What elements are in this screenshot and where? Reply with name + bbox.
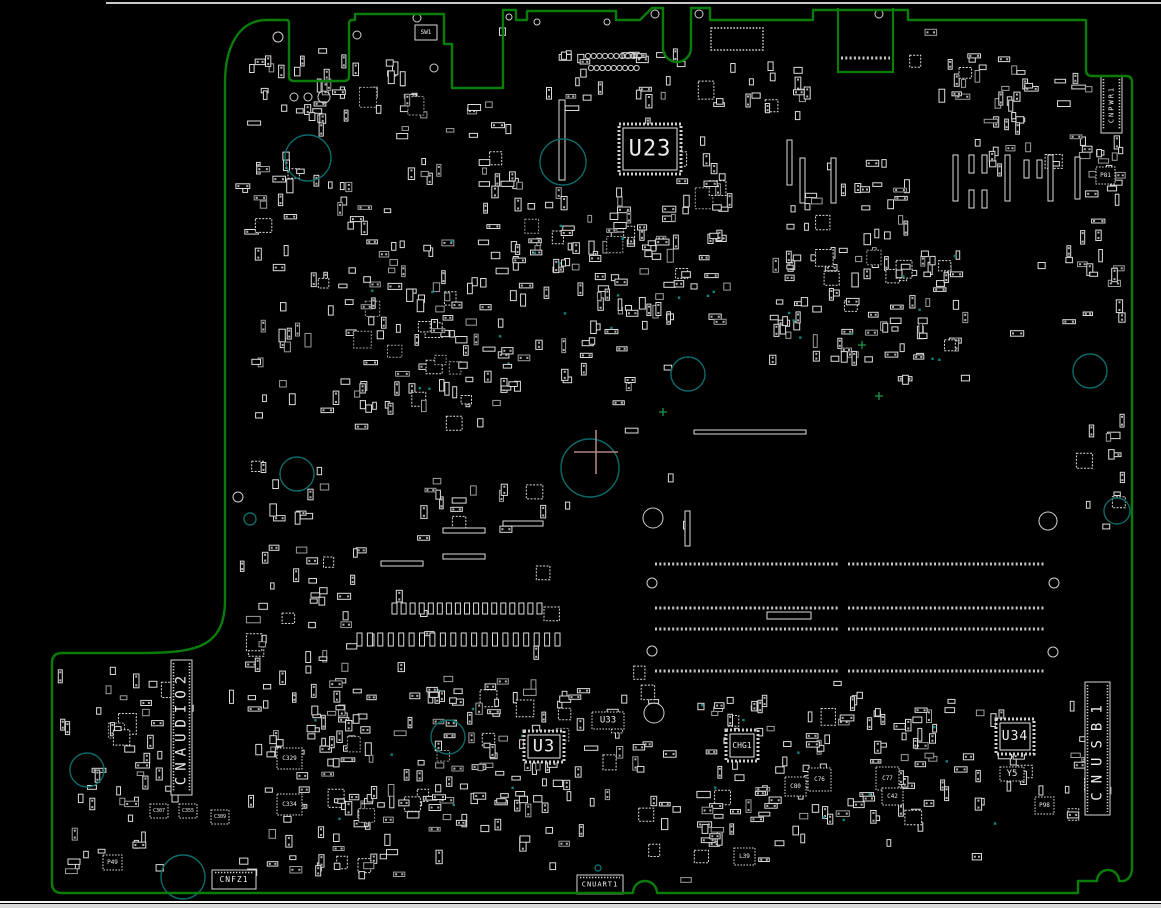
pad-mark [360, 218, 362, 220]
smd-component [269, 545, 279, 550]
pad-mark [320, 828, 322, 830]
smd-component [452, 516, 465, 528]
pad-mark [766, 805, 768, 807]
via-dot [792, 319, 794, 321]
pad-row-pad [474, 603, 479, 614]
pad-mark [433, 330, 435, 332]
smd-component [841, 352, 847, 363]
pad-mark [355, 796, 357, 798]
pad-mark [1006, 126, 1008, 128]
pad-mark [1074, 80, 1076, 82]
pad-mark [591, 257, 593, 259]
via-dot [511, 787, 513, 789]
pad-mark [1121, 319, 1123, 321]
pad-mark [602, 276, 604, 278]
pad-mark [566, 786, 568, 788]
smd-component [568, 243, 572, 250]
pad-mark [304, 775, 306, 777]
smd-component [526, 485, 543, 499]
pad-mark [362, 390, 364, 392]
via-dot [621, 238, 623, 240]
pad-mark [838, 813, 840, 815]
pad-mark [869, 726, 871, 728]
smd-component [349, 794, 358, 799]
pad-mark [274, 178, 276, 180]
pad-mark [298, 869, 300, 871]
pad-mark [267, 63, 269, 65]
smd-component [1007, 782, 1011, 791]
pad-mark [282, 681, 284, 683]
component-label: P49 [107, 859, 118, 866]
pad-mark [684, 180, 686, 182]
component-label: U3 [533, 737, 555, 757]
smd-component [343, 612, 348, 620]
pad-mark [475, 795, 477, 797]
smd-component [590, 798, 594, 806]
pad-mark [374, 362, 376, 364]
pad-mark [336, 699, 338, 701]
component-label: C329 [282, 755, 297, 762]
pad-mark [442, 796, 444, 798]
pad-mark [759, 709, 761, 711]
pad-mark [753, 703, 755, 705]
smd-component [639, 808, 654, 821]
pad-mark [448, 778, 450, 780]
pad-mark [580, 833, 582, 835]
pad-mark [699, 823, 701, 825]
smd-component [351, 575, 355, 584]
smd-component [256, 413, 263, 418]
smd-component [308, 734, 315, 739]
smd-component [120, 798, 125, 805]
pad-mark [409, 719, 411, 721]
smd-component [493, 400, 501, 405]
via-dot [931, 358, 933, 360]
pad-row-pad [483, 603, 488, 614]
pad-mark [619, 209, 621, 211]
pad-mark [904, 784, 906, 786]
pad-mark [563, 232, 565, 234]
smd-component [715, 703, 724, 709]
pad-mark [91, 800, 93, 802]
pad-mark [492, 686, 494, 688]
pad-mark [1121, 267, 1123, 269]
pad-mark [866, 270, 868, 272]
pad-mark [342, 91, 344, 93]
pad-mark [1116, 137, 1118, 139]
pad-mark [616, 281, 618, 283]
pad-mark [158, 770, 160, 772]
pad-mark [494, 188, 496, 190]
smd-component [639, 298, 645, 310]
smd-component [453, 387, 457, 398]
pad-mark [368, 241, 370, 243]
smd-component [984, 119, 998, 123]
pad-mark [849, 354, 851, 356]
pad-mark [900, 378, 902, 380]
smd-component [436, 785, 441, 792]
via-dot [431, 291, 433, 293]
pad-mark [308, 560, 310, 562]
pad-mark [383, 325, 385, 327]
pad-mark [503, 380, 505, 382]
pad-mark [928, 711, 930, 713]
pad-mark [718, 316, 720, 318]
smd-component [1072, 85, 1086, 89]
pad-mark [675, 245, 677, 247]
pad-mark [543, 718, 545, 720]
via-dot [946, 760, 948, 762]
pad-mark [1000, 93, 1002, 95]
pad-mark [597, 276, 599, 278]
pad-mark [351, 796, 353, 798]
smd-component [1065, 786, 1069, 793]
pad-mark [410, 169, 412, 171]
smd-component [328, 306, 333, 315]
thin-component [1024, 160, 1029, 178]
smd-component [786, 332, 791, 338]
pad-mark [503, 350, 505, 352]
pad-mark [406, 373, 408, 375]
pad-mark [453, 768, 455, 770]
pad-mark [313, 283, 315, 285]
pad-mark [1016, 94, 1018, 96]
pad-mark [839, 345, 841, 347]
via-dot [822, 816, 824, 818]
smd-component [320, 484, 328, 490]
pad-mark [852, 698, 854, 700]
smd-component [672, 214, 676, 221]
pad-mark [441, 330, 443, 332]
pad-mark [323, 409, 325, 411]
pad-mark [933, 31, 935, 33]
pad-mark [438, 852, 440, 854]
pad-mark [595, 253, 597, 255]
smd-component [918, 728, 922, 741]
pad-mark [322, 116, 324, 118]
smd-component [361, 727, 370, 733]
smd-component [84, 851, 89, 858]
pad-mark [586, 690, 588, 692]
pad-mark [634, 758, 636, 760]
pad-mark [429, 181, 431, 183]
smd-component [561, 52, 566, 59]
pad-mark [438, 173, 440, 175]
pad-mark [806, 88, 808, 90]
via-dot [617, 294, 619, 296]
smd-component [296, 109, 303, 113]
smd-component [1099, 250, 1103, 262]
smd-component [259, 603, 268, 609]
pad-mark [974, 856, 976, 858]
pad-mark [667, 803, 669, 805]
smd-component [271, 583, 275, 589]
pad-mark [911, 785, 913, 787]
pad-mark [348, 624, 350, 626]
pad-mark [1090, 433, 1092, 435]
pad-mark [664, 208, 666, 210]
smd-component [491, 252, 500, 258]
via-dot [714, 786, 716, 788]
pad-mark [1118, 309, 1120, 311]
pad-mark [522, 259, 524, 261]
component-label: C42 [887, 793, 898, 800]
pad-mark [426, 537, 428, 539]
pad-mark [715, 275, 717, 277]
via-dot [797, 751, 799, 753]
pad-mark [624, 348, 626, 350]
smd-component [864, 269, 870, 279]
pad-mark [432, 489, 434, 491]
pad-row-pad [357, 633, 362, 646]
smd-component [1012, 66, 1017, 74]
via-dot [419, 387, 421, 389]
pad-mark [712, 839, 714, 841]
smd-component [697, 791, 710, 797]
pad-mark [351, 759, 353, 761]
component-label: C80 [790, 783, 801, 790]
smd-component [691, 284, 697, 289]
smd-component [149, 681, 157, 687]
pad-mark [977, 800, 979, 802]
pad-mark [264, 560, 266, 562]
smd-component [328, 711, 336, 715]
pad-mark [469, 721, 471, 723]
smd-component [364, 863, 374, 869]
pad-mark [352, 581, 354, 583]
smd-component [319, 49, 327, 54]
pad-mark [600, 307, 602, 309]
smd-component [901, 755, 908, 761]
pad-mark [711, 316, 713, 318]
via-dot [559, 262, 561, 264]
pad-mark [661, 803, 663, 805]
pad-mark [345, 748, 347, 750]
thin-component [443, 528, 485, 533]
pad-mark [563, 206, 565, 208]
pad-mark [648, 306, 650, 308]
component-CNPWR1: CNPWR1 [1101, 76, 1122, 133]
pad-mark [1007, 147, 1009, 149]
smd-component [821, 709, 835, 726]
pad-mark [250, 708, 252, 710]
pad-mark [787, 277, 789, 279]
pad-mark [474, 766, 476, 768]
pad-mark [334, 91, 336, 93]
smd-component [831, 356, 839, 361]
pad-mark [606, 331, 608, 333]
pad-mark [496, 183, 498, 185]
pad-mark [575, 244, 577, 246]
smd-component [913, 738, 917, 748]
pad-mark [657, 241, 659, 243]
smd-component [388, 785, 394, 797]
smd-component [360, 384, 365, 393]
pad-mark [930, 802, 932, 804]
smd-component [322, 738, 326, 746]
pad-mark [526, 357, 528, 359]
pad-mark [280, 74, 282, 76]
smd-component [347, 644, 357, 649]
smd-component [791, 206, 795, 212]
smd-component [1076, 453, 1092, 468]
smd-component [589, 338, 594, 344]
smd-component [900, 344, 904, 352]
smd-component [901, 264, 910, 269]
pad-mark [420, 366, 422, 368]
component-Y5: Y5 [1000, 767, 1024, 781]
pad-mark [280, 67, 282, 69]
smd-component [715, 790, 731, 805]
smd-component [961, 375, 969, 381]
smd-component [354, 549, 358, 557]
pad-mark [1121, 314, 1123, 316]
smd-component [956, 251, 960, 259]
pad-mark [999, 172, 1001, 174]
smd-component [117, 787, 121, 795]
smd-component [347, 737, 360, 752]
pad-mark [766, 788, 768, 790]
smd-component [591, 321, 597, 334]
pad-mark [569, 232, 571, 234]
smd-component [1083, 312, 1092, 316]
pad-mark [560, 269, 562, 271]
pad-row-pad [519, 603, 524, 614]
smd-component [422, 159, 426, 165]
pad-mark [762, 792, 764, 794]
smd-component [260, 201, 266, 208]
pad-mark [339, 595, 341, 597]
smd-component [865, 357, 873, 362]
pad-mark [426, 489, 428, 491]
pad-mark [309, 491, 311, 493]
smd-component [390, 260, 398, 266]
pad-mark [872, 812, 874, 814]
pad-mark [866, 275, 868, 277]
pad-row-pad [437, 603, 442, 614]
pad-mark [489, 711, 491, 713]
smd-component [306, 666, 311, 673]
smd-component [890, 318, 901, 323]
pad-mark [262, 464, 264, 466]
pad-mark [246, 185, 248, 187]
smd-component [580, 60, 590, 64]
pad-mark [558, 189, 560, 191]
pad-mark [320, 856, 322, 858]
pad-mark [446, 735, 448, 737]
pad-mark [606, 291, 608, 293]
pad-mark [759, 702, 761, 704]
smd-component [662, 819, 668, 830]
smd-component [279, 329, 285, 342]
pad-mark [634, 312, 636, 314]
thin-component [559, 100, 565, 180]
pad-mark [713, 170, 715, 172]
pad-mark [266, 168, 268, 170]
component-U23: U23 [619, 124, 681, 174]
pad-mark [74, 830, 76, 832]
smd-component [856, 256, 862, 261]
smd-component [562, 260, 566, 266]
pad-mark [328, 748, 330, 750]
pad-mark [1087, 193, 1089, 195]
smd-component [913, 717, 922, 723]
smd-component [120, 696, 127, 700]
pad-mark [718, 237, 720, 239]
pad-mark [855, 301, 857, 303]
smd-component [443, 815, 451, 820]
component-C329: C329 [277, 748, 302, 769]
pad-mark [410, 176, 412, 178]
pad-row-pad [534, 633, 539, 646]
pad-mark [827, 267, 829, 269]
pad-mark [964, 314, 966, 316]
pad-mark [487, 686, 489, 688]
pad-mark [496, 225, 498, 227]
pad-mark [269, 863, 271, 865]
pad-mark [331, 738, 333, 740]
smd-component [1109, 450, 1114, 460]
pad-mark [911, 305, 913, 307]
component-CNUART1: CNUART1 [577, 875, 623, 894]
smd-component [456, 337, 467, 343]
pad-row-pad [510, 603, 515, 614]
smd-component [813, 306, 822, 312]
pad-mark [877, 760, 879, 762]
pad-mark [419, 772, 421, 774]
pad-row-pad [492, 603, 497, 614]
pad-mark [441, 698, 443, 700]
smd-component [656, 294, 664, 300]
pad-mark [246, 231, 248, 233]
smd-component [289, 394, 295, 405]
smd-component [443, 316, 453, 321]
smd-component [546, 202, 553, 208]
pad-mark [608, 230, 610, 232]
pad-mark [280, 202, 282, 204]
pad-mark [313, 686, 315, 688]
pad-mark [797, 313, 799, 315]
pad-mark [946, 788, 948, 790]
smd-component [637, 767, 644, 773]
smd-component [240, 858, 248, 864]
smd-component [752, 701, 757, 711]
pad-mark [336, 693, 338, 695]
pad-mark [419, 537, 421, 539]
pad-mark [945, 274, 947, 276]
smd-component [486, 102, 493, 108]
smd-component [481, 825, 489, 831]
pad-mark [582, 61, 584, 63]
pad-mark [348, 184, 350, 186]
smd-component [1006, 146, 1015, 151]
smd-component [694, 850, 708, 863]
smd-component [795, 112, 800, 120]
smd-component [459, 362, 467, 368]
smd-component [808, 712, 812, 722]
pad-mark [1064, 321, 1066, 323]
thin-component [381, 561, 423, 566]
smd-component [603, 755, 616, 770]
smd-component [521, 294, 526, 306]
smd-component [816, 250, 834, 267]
smd-component [824, 271, 839, 285]
smd-component [641, 685, 654, 700]
pad-mark [377, 283, 379, 285]
smd-component [454, 689, 462, 694]
smd-component [510, 172, 516, 181]
smd-component [588, 215, 592, 222]
